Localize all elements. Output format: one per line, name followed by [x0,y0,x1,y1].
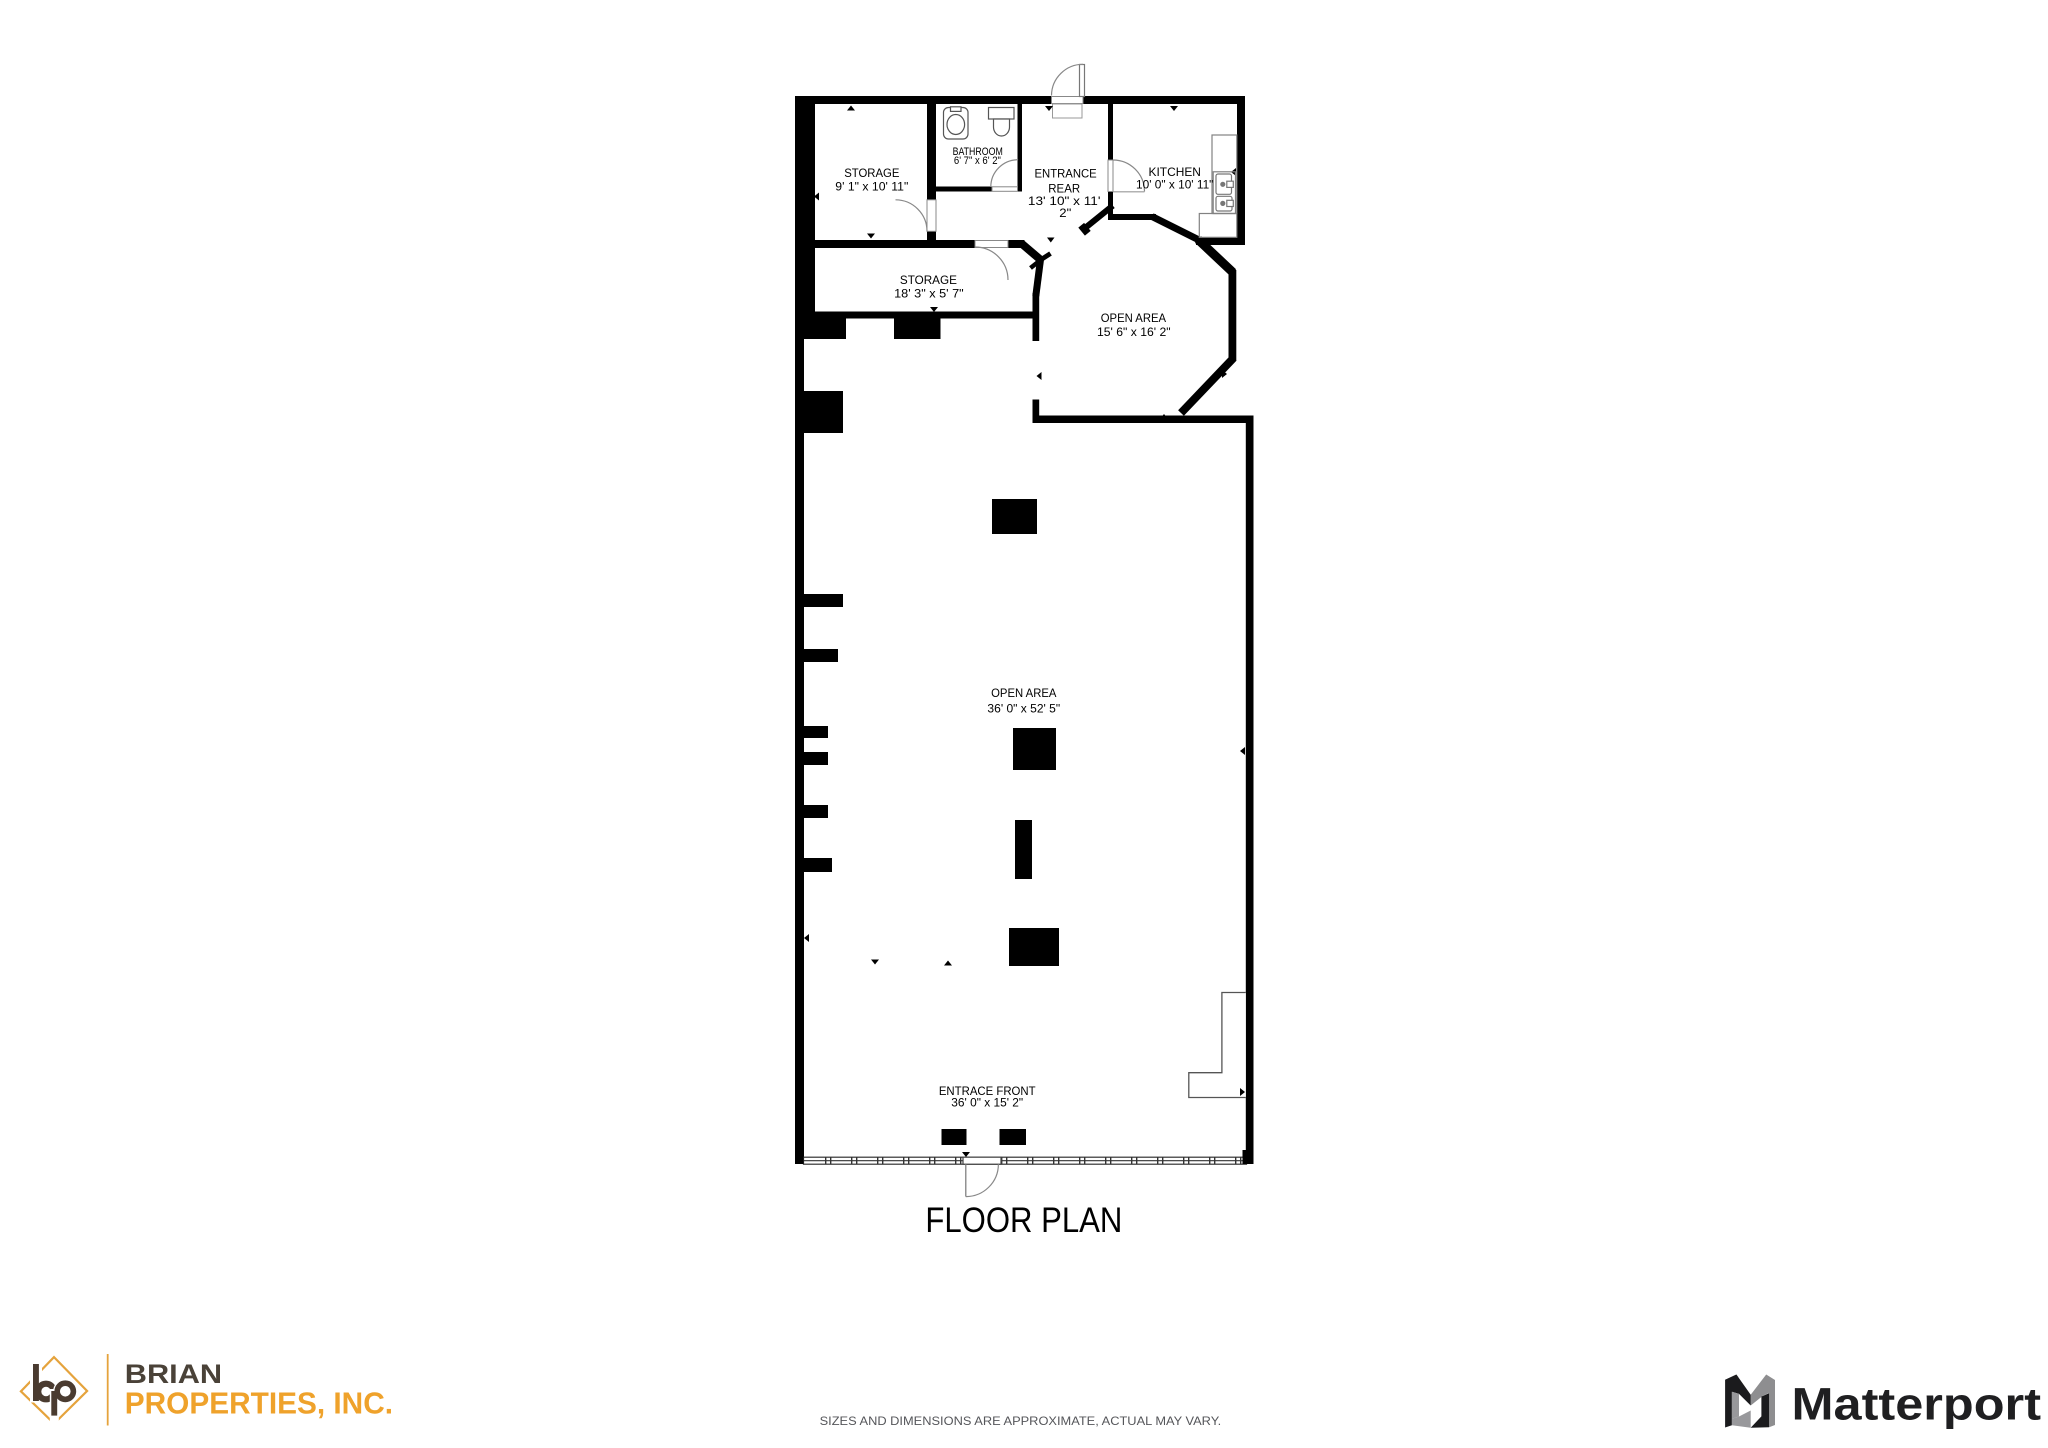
svg-text:Matterport: Matterport [1792,1379,2042,1430]
svg-text:15' 6" x 16' 2": 15' 6" x 16' 2" [1097,325,1171,339]
svg-text:SIZES AND DIMENSIONS ARE APPRO: SIZES AND DIMENSIONS ARE APPROXIMATE, AC… [820,1414,1222,1428]
svg-text:PROPERTIES, INC.: PROPERTIES, INC. [125,1387,393,1421]
svg-text:OPEN AREA: OPEN AREA [991,686,1056,700]
svg-text:6' 7" x 6' 2": 6' 7" x 6' 2" [954,155,1001,167]
svg-text:36' 0" x 15' 2": 36' 0" x 15' 2" [951,1096,1023,1110]
svg-text:STORAGE: STORAGE [844,166,899,180]
svg-text:ENTRANCE: ENTRANCE [1035,166,1097,180]
svg-text:FLOOR PLAN: FLOOR PLAN [925,1201,1122,1240]
svg-text:36' 0" x 52' 5": 36' 0" x 52' 5" [987,702,1060,716]
svg-text:BRIAN: BRIAN [125,1359,222,1389]
svg-text:STORAGE: STORAGE [900,273,957,287]
svg-text:2": 2" [1059,206,1071,220]
svg-text:10' 0" x 10' 11": 10' 0" x 10' 11" [1136,178,1213,192]
svg-text:OPEN AREA: OPEN AREA [1101,311,1166,325]
svg-text:9' 1" x 10' 11": 9' 1" x 10' 11" [835,179,908,193]
svg-text:18' 3" x 5' 7": 18' 3" x 5' 7" [894,287,964,301]
